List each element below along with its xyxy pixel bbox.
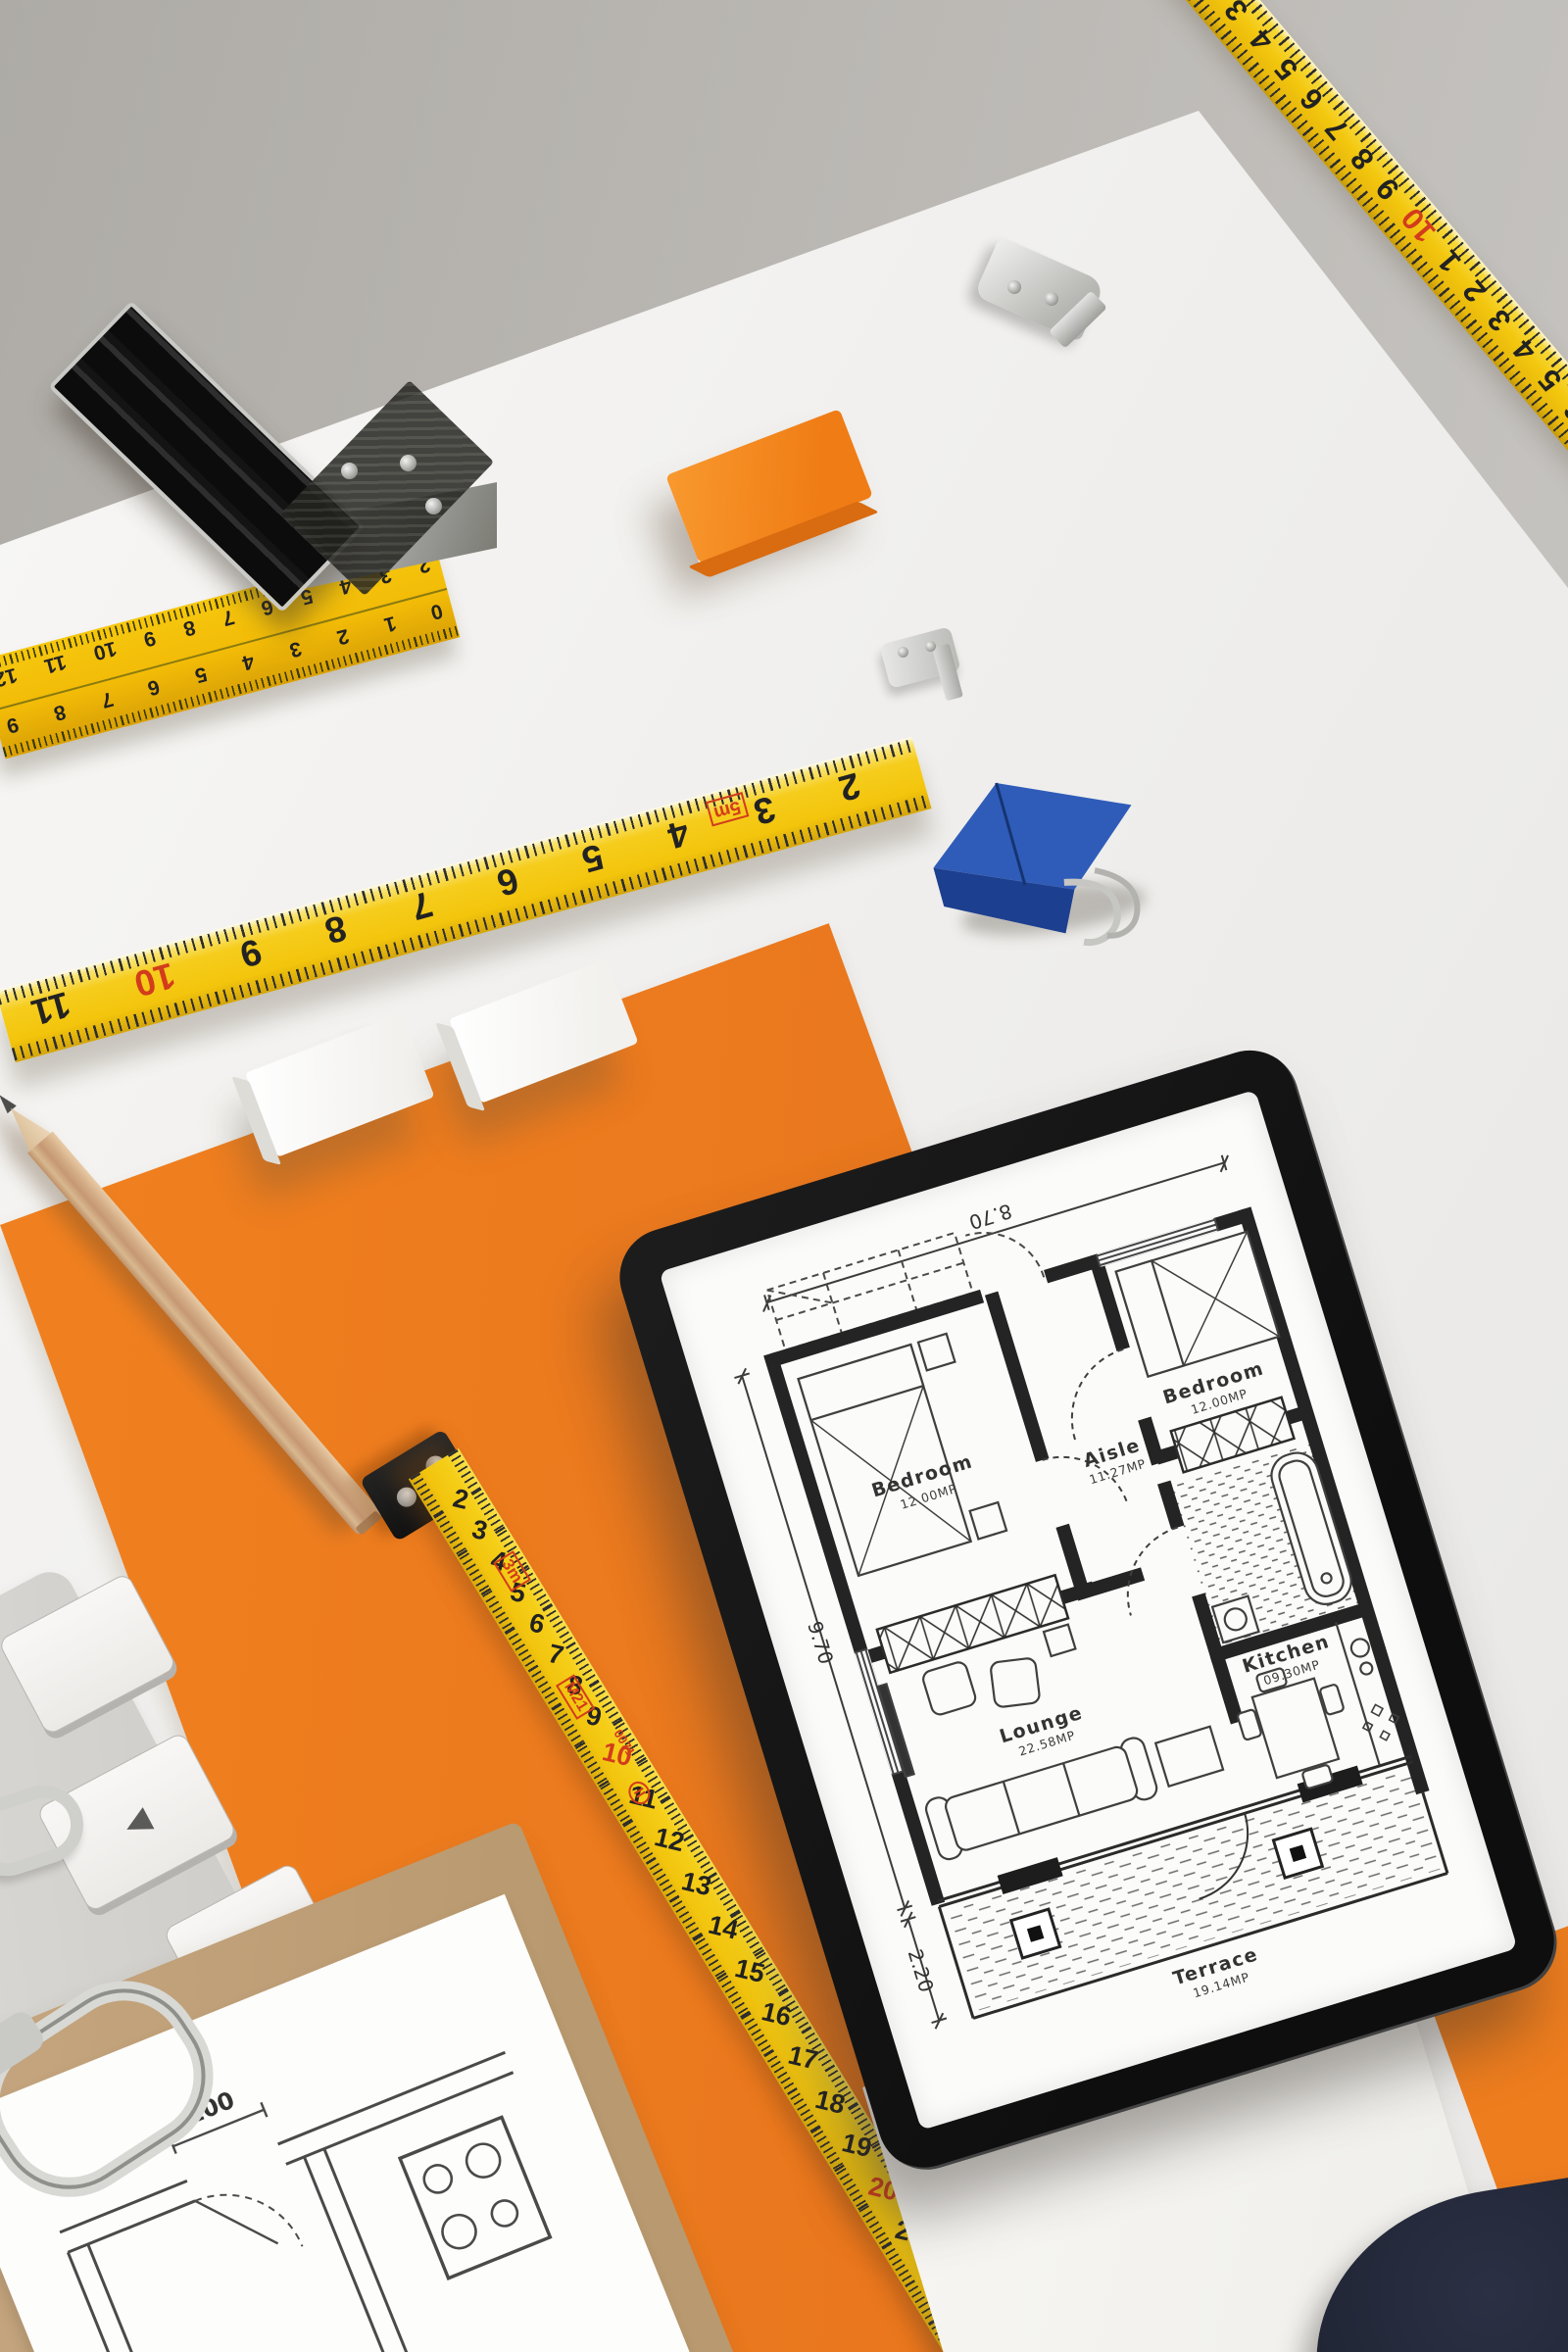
dim-left: 9.70 [803,1618,838,1667]
scale-number: 11 [27,986,74,1031]
scale-number: 8 [1346,143,1380,175]
dim-bottom-left: 2.20 [904,1946,939,1995]
rivet-icon [400,455,416,471]
scale-number: 3 [287,638,304,661]
scale-number: 17 [786,2042,821,2075]
scale-number: 12 [0,664,20,690]
blue-binder-clip [907,756,1175,959]
scale-number: 6 [1295,83,1329,116]
rivet-icon [898,647,908,658]
rivet-icon [1045,292,1058,306]
scale-number: 1 [381,612,398,635]
scale-number: 14 [706,1911,741,1943]
scale-number: 7 [99,688,116,710]
scale-number: 19 [839,2130,874,2162]
scale-number: 6 [493,861,522,902]
scale-number: 8 [181,616,198,639]
scale-number: 13 [679,1868,714,1900]
left-arrow-key-glyph: ◄ [108,1791,166,1852]
scale-number: 12 [652,1824,687,1856]
rivet-icon [925,641,936,652]
scale-number: 7 [220,606,237,628]
scale-number: 1 [1432,245,1466,277]
scale-number: 0 [428,600,445,622]
scale-number: 8 [321,909,351,950]
scale-number: 10 [91,638,119,663]
rivet-icon [341,463,358,479]
scale-number: 3 [1483,305,1517,337]
architect-flatlay-scene: 23456789101112 0123456789 234567891011 5… [0,0,1568,2352]
scale-number: 2 [1457,274,1492,307]
scale-number: 5 [193,663,210,686]
scale-number: 9 [236,933,266,973]
scale-number: 4 [1245,24,1279,56]
scale-number: 3 [469,1516,490,1545]
rivet-icon [1007,280,1021,294]
scale-number: 18 [812,2085,848,2118]
clipboard-metal-clip [0,1950,249,2244]
scale-number: 7 [1320,113,1354,145]
scale-number: 8 [52,701,69,723]
scale-number: 2 [835,766,864,807]
scale-number: 4 [1507,334,1542,367]
scale-number: 6 [146,675,163,698]
scale-number: 7 [407,886,436,926]
scale-number: 10 [130,956,179,1003]
scale-number: 9 [4,713,21,736]
scale-number: 7 [546,1641,566,1670]
scale-number: 2 [451,1485,471,1514]
scale-number: 16 [759,1998,795,2031]
scale-number: 2 [334,625,351,648]
pencil-graphite-tip [0,1091,17,1113]
scale-number: 9 [1370,172,1404,205]
scale-number: 11 [42,651,69,676]
scale-number: 5 [578,838,608,878]
scale-number: 3 [750,791,779,831]
scale-number: 9 [142,627,159,650]
rivet-icon [425,498,442,514]
scale-number: 4 [664,814,694,855]
scale-number: 5 [1533,364,1567,396]
scale-number: 4 [240,651,257,673]
scale-number: 3 [1219,0,1253,26]
scale-number: 15 [732,1955,767,1987]
scale-number: 5 [1269,54,1303,86]
scale-number: 6 [526,1609,547,1639]
